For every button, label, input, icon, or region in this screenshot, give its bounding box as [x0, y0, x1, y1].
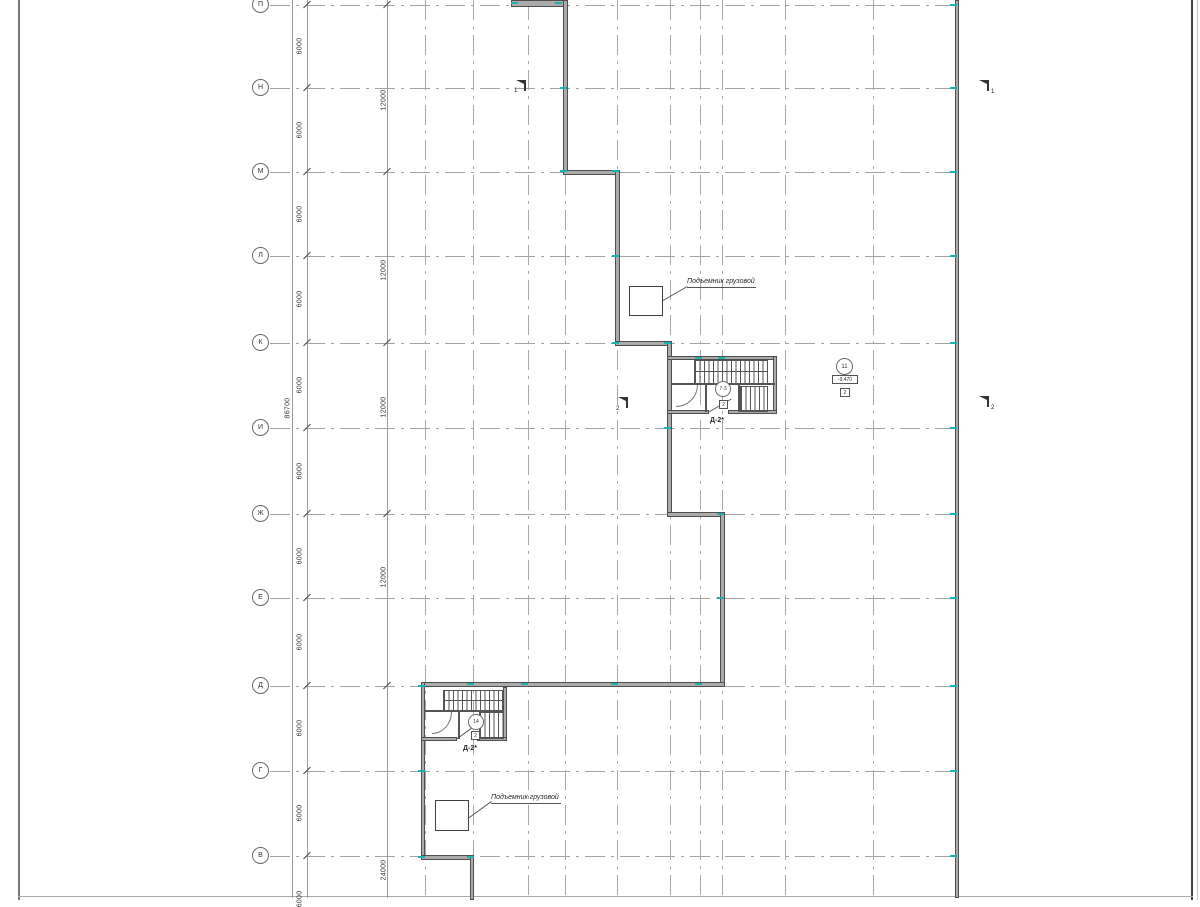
wall-grid-tick	[695, 357, 702, 359]
stair-upper-stringer	[694, 371, 768, 372]
row-axis-label: Л	[258, 252, 263, 259]
hoist-upper-leader	[663, 286, 688, 301]
stair-lower-mark: Д-2*	[463, 745, 477, 752]
wall-grid-tick	[560, 170, 567, 172]
dim-text-12000: 12000	[381, 260, 388, 281]
row-axis-bubble: Л	[252, 247, 269, 264]
row-axis-label: П	[258, 1, 263, 8]
dim-text-6000: 6000	[297, 548, 304, 565]
wall-grid-tick	[950, 597, 957, 599]
section-flag-icon	[618, 397, 626, 401]
section-flag-icon	[979, 80, 987, 84]
dim-text-6000: 6000	[297, 634, 304, 651]
column-axis-line	[617, 0, 618, 898]
section-stem	[524, 80, 526, 91]
dimension-line-double-bays	[387, 0, 388, 898]
section-stem	[626, 397, 628, 408]
row-axis-bubble: Н	[252, 79, 269, 96]
stair-upper-door-arc	[676, 385, 698, 407]
elevation-value: -9.470	[838, 377, 852, 383]
dim-text-12000: 12000	[381, 397, 388, 418]
dim-text-6000: 6000	[297, 805, 304, 822]
dimension-line-total	[292, 0, 293, 898]
column-axis-line	[785, 0, 786, 898]
wall-grid-tick	[611, 683, 618, 685]
dim-text-6000: 6000	[297, 377, 304, 394]
dim-text-12000: 12000	[381, 567, 388, 588]
detail-bubble: 11	[836, 358, 853, 375]
row-axis-line	[270, 514, 959, 515]
row-axis-bubble: Е	[252, 589, 269, 606]
wall-grid-tick	[467, 683, 474, 685]
row-axis-label: И	[258, 424, 263, 431]
wall-grid-tick	[950, 685, 957, 687]
stair-lower-stringer	[443, 700, 503, 701]
row-axis-line	[270, 771, 959, 772]
section-mark-2-left: 2	[618, 397, 634, 414]
wall-grid-tick	[950, 4, 957, 6]
dim-text-6000: 6000	[297, 206, 304, 223]
wall-grid-tick	[950, 427, 957, 429]
stair-lower-door-arc	[432, 712, 452, 734]
stair-upper-wall-bottom	[667, 410, 709, 414]
row-axis-bubble: И	[252, 419, 269, 436]
row-axis-label: В	[258, 852, 263, 859]
wall-grid-tick	[664, 427, 671, 429]
stair-lower-node-square: 2	[471, 731, 480, 740]
stair-upper-treads	[740, 386, 768, 412]
dim-text-6000: 6000	[297, 291, 304, 308]
wall-grid-tick	[717, 513, 724, 515]
wall-grid-tick	[695, 683, 702, 685]
hoist-lower-shaft	[435, 800, 469, 831]
wall-grid-tick	[555, 2, 562, 4]
section-mark-2-right: 2	[979, 396, 995, 413]
node-square-label: 2	[474, 733, 477, 739]
zone-square: 2	[840, 388, 850, 397]
stair-upper-node-square: 2	[719, 400, 728, 409]
wall-grid-tick	[664, 342, 671, 344]
row-axis-line	[270, 88, 959, 89]
sheet-border-right	[1191, 0, 1193, 900]
stair-upper-wall-right	[773, 356, 777, 414]
dim-text-6000: 6000	[297, 122, 304, 139]
wall-grid-tick	[612, 255, 619, 257]
wall-right	[955, 0, 959, 898]
wall-grid-tick	[950, 87, 957, 89]
dim-text-6000: 6000	[297, 38, 304, 55]
dim-text-6000: 6000	[297, 720, 304, 737]
wall-vertical	[615, 170, 620, 346]
row-axis-line	[270, 5, 959, 6]
row-axis-label: Ж	[257, 510, 263, 517]
stair-lower-node-bubble: 14	[468, 714, 484, 730]
wall-grid-tick	[612, 170, 619, 172]
dim-text-6000: 6000	[297, 463, 304, 480]
wall-grid-tick	[511, 2, 518, 4]
stair-upper-partition	[705, 385, 707, 412]
wall-grid-tick	[950, 171, 957, 173]
section-mark-1-right: 1	[979, 80, 995, 97]
stair-upper-mark: Д-2*	[710, 417, 724, 424]
row-axis-bubble: В	[252, 847, 269, 864]
column-axis-line	[425, 0, 426, 898]
wall-grid-tick	[950, 513, 957, 515]
row-axis-label: Г	[259, 767, 263, 774]
elevation-mark: -9.470	[832, 375, 858, 384]
hoist-upper-label: Подъемник грузовой	[687, 278, 755, 285]
wall-grid-tick	[950, 342, 957, 344]
section-flag-icon	[979, 396, 987, 400]
wall-grid-tick	[950, 855, 957, 857]
section-mark-1-left: 1	[516, 80, 532, 97]
hoist-lower-leader	[468, 801, 492, 819]
row-axis-label: М	[258, 168, 264, 175]
wall-grid-tick	[418, 685, 425, 687]
node-square-label: 2	[722, 402, 725, 408]
sheet-border-left	[18, 0, 20, 900]
hoist-upper-shaft	[629, 286, 663, 316]
column-axis-line	[528, 0, 529, 898]
column-axis-line	[722, 0, 723, 898]
sheet-border-bottom	[18, 896, 1193, 897]
stair-lower-wall-bottom	[421, 737, 457, 741]
wall-vertical	[667, 341, 672, 517]
row-axis-bubble: М	[252, 163, 269, 180]
wall-grid-tick	[467, 856, 474, 858]
section-number: 2	[616, 406, 619, 412]
dim-text-total: 86700	[285, 398, 292, 419]
floor-plan-sheet: { "sheet": { "rows": [ {"label":"П"},{"l…	[0, 0, 1200, 900]
wall-grid-tick	[560, 87, 567, 89]
section-stem	[987, 396, 989, 407]
row-axis-label: К	[258, 339, 262, 346]
column-axis-line	[473, 0, 474, 898]
wall-grid-tick	[717, 597, 724, 599]
wall-grid-tick	[418, 770, 425, 772]
wall-grid-tick	[418, 856, 425, 858]
section-stem	[987, 80, 989, 91]
detail-bubble-label: 11	[841, 364, 847, 370]
row-axis-line	[270, 856, 959, 857]
row-axis-line	[270, 598, 959, 599]
row-axis-label: Д	[258, 682, 263, 689]
wall-grid-tick	[612, 342, 619, 344]
section-number: 1	[514, 88, 517, 94]
sheet-edge-right	[1197, 0, 1198, 900]
wall-grid-tick	[718, 357, 725, 359]
wall-grid-tick	[950, 770, 957, 772]
hoist-lower-underline	[491, 803, 561, 804]
wall-vertical	[720, 512, 725, 687]
row-axis-bubble: П	[252, 0, 269, 13]
section-number: 2	[991, 405, 994, 411]
row-axis-bubble: Д	[252, 677, 269, 694]
dim-text-24000: 24000	[381, 860, 388, 881]
stair-upper-node-bubble: 7-3	[715, 381, 731, 397]
dim-text-6000-clipped: 6000	[297, 891, 304, 907]
column-axis-line	[873, 0, 874, 898]
section-flag-icon	[516, 80, 524, 84]
row-axis-bubble: Ж	[252, 505, 269, 522]
row-axis-label: Е	[258, 594, 263, 601]
hoist-upper-underline	[687, 287, 756, 288]
row-axis-bubble: К	[252, 334, 269, 351]
row-axis-bubble: Г	[252, 762, 269, 779]
dim-text-12000: 12000	[381, 90, 388, 111]
stair-lower-node-label: 14	[473, 719, 479, 725]
wall-grid-tick	[950, 255, 957, 257]
wall-vertical	[470, 855, 474, 900]
stair-upper-treads	[694, 360, 768, 384]
stair-upper-node-label: 7-3	[719, 386, 726, 392]
row-axis-label: Н	[258, 84, 263, 91]
dimension-line-bays	[307, 0, 308, 898]
wall-grid-tick	[521, 683, 528, 685]
zone-square-label: 2	[844, 390, 847, 396]
row-axis-line	[270, 428, 959, 429]
section-number: 1	[991, 89, 994, 95]
column-axis-line	[700, 0, 701, 898]
hoist-lower-label: Подъемник грузовой	[491, 794, 559, 801]
